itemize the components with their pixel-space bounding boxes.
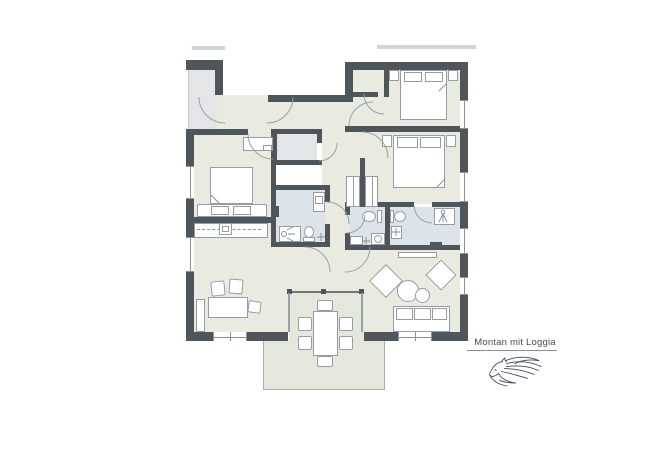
loggia-side-rail bbox=[361, 293, 363, 332]
coffee-table bbox=[415, 288, 430, 303]
window bbox=[398, 332, 432, 341]
loggia-railing bbox=[289, 291, 364, 293]
wall bbox=[272, 160, 322, 165]
wall bbox=[325, 224, 330, 247]
wall bbox=[345, 126, 460, 132]
window bbox=[460, 228, 468, 254]
sofa-cushion bbox=[414, 308, 431, 320]
floor-plan-canvas: Montan mit Loggia bbox=[0, 0, 650, 450]
pillow bbox=[397, 137, 418, 148]
nightstand bbox=[446, 135, 456, 147]
stove-icon bbox=[222, 226, 229, 232]
loggia-side-rail bbox=[288, 293, 290, 332]
pillow bbox=[211, 206, 229, 215]
nightstand bbox=[382, 135, 392, 147]
shower bbox=[434, 208, 455, 225]
chair bbox=[298, 317, 312, 331]
desk bbox=[208, 297, 248, 318]
railing-post bbox=[321, 289, 326, 294]
horse-eye bbox=[495, 370, 496, 371]
pillow bbox=[233, 206, 251, 215]
washbasin bbox=[391, 226, 402, 239]
pillow bbox=[404, 72, 422, 82]
side-table bbox=[247, 300, 262, 314]
pillow bbox=[420, 137, 441, 148]
chair bbox=[228, 278, 243, 294]
window bbox=[460, 172, 468, 202]
shelf bbox=[196, 299, 205, 332]
pillow bbox=[425, 72, 443, 82]
plan-title: Montan mit Loggia bbox=[472, 337, 558, 348]
washbasin bbox=[350, 236, 363, 245]
toilet-tank bbox=[377, 210, 382, 223]
horse-head bbox=[490, 362, 503, 377]
horse-mane bbox=[506, 366, 538, 371]
chair bbox=[339, 336, 353, 350]
wall bbox=[325, 185, 330, 202]
room-vestibule bbox=[188, 70, 217, 129]
wall-bottom bbox=[186, 332, 213, 341]
wall bbox=[317, 129, 322, 143]
wall-bottom bbox=[364, 332, 398, 341]
chair bbox=[317, 356, 333, 367]
basin bbox=[315, 196, 323, 204]
horse-ear bbox=[502, 358, 507, 362]
wall bbox=[271, 242, 330, 247]
wall bbox=[345, 207, 350, 215]
wall bbox=[194, 129, 248, 135]
nightstand bbox=[448, 70, 458, 81]
horse-mane bbox=[502, 372, 528, 379]
wardrobe bbox=[365, 176, 378, 207]
window bbox=[186, 166, 194, 199]
window bbox=[213, 332, 247, 341]
wall bbox=[345, 245, 460, 250]
chair bbox=[210, 280, 225, 296]
washing-machine-icon bbox=[374, 235, 382, 243]
wall bbox=[215, 60, 223, 95]
wall bbox=[268, 95, 353, 102]
wall bbox=[432, 202, 460, 207]
caption-rule bbox=[467, 350, 557, 351]
toilet-tank bbox=[303, 237, 315, 242]
bed-headboard bbox=[197, 204, 267, 217]
shower bbox=[279, 226, 301, 242]
building-stub-left bbox=[192, 46, 225, 50]
dining-table bbox=[313, 311, 338, 356]
radiator bbox=[273, 206, 279, 217]
horse-chest bbox=[490, 375, 507, 386]
window bbox=[186, 237, 194, 272]
wall bbox=[345, 92, 378, 97]
sofa-cushion bbox=[396, 308, 413, 320]
toilet-bowl bbox=[362, 211, 376, 222]
wall bbox=[272, 129, 322, 134]
wall bbox=[271, 185, 330, 190]
tv-lowboard bbox=[398, 252, 437, 258]
double-bed bbox=[210, 167, 253, 204]
wall-left bbox=[186, 129, 194, 341]
horse-neck bbox=[499, 373, 516, 383]
wall bbox=[345, 62, 468, 70]
window bbox=[460, 100, 468, 129]
wall-bottom bbox=[247, 332, 288, 341]
horse-logo bbox=[487, 355, 545, 388]
chair bbox=[339, 317, 353, 331]
room-hall-closet bbox=[277, 134, 317, 160]
radiator bbox=[430, 242, 442, 247]
toilet-bowl bbox=[394, 211, 406, 222]
wardrobe-shelf bbox=[263, 145, 272, 151]
wardrobe bbox=[346, 176, 360, 207]
nightstand bbox=[389, 70, 399, 81]
chair bbox=[298, 336, 312, 350]
sofa-cushion bbox=[432, 308, 447, 320]
chair bbox=[317, 300, 333, 311]
building-stub-right bbox=[377, 45, 476, 49]
window bbox=[460, 277, 468, 295]
wall-bottom bbox=[432, 332, 468, 341]
